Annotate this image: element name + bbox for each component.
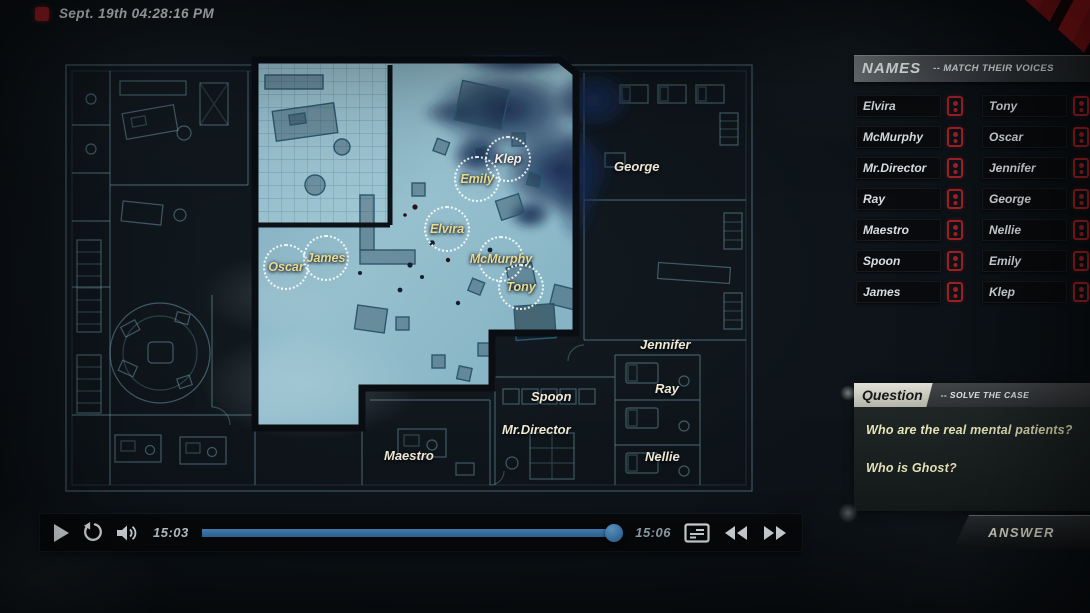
marker-label: Tony <box>506 280 535 294</box>
character-marker[interactable]: Oscar <box>263 244 309 290</box>
voice-slot-icon[interactable] <box>947 251 963 271</box>
progress-track[interactable] <box>202 529 623 537</box>
blueprint-map <box>60 55 760 500</box>
rewind-icon[interactable] <box>723 525 749 541</box>
name-slot[interactable]: Klep <box>982 281 1067 303</box>
person-glyph <box>1079 287 1084 292</box>
question-subtitle-band: -- SOLVE THE CASE <box>925 383 1090 407</box>
question-body: Who are the real mental patients? Who is… <box>854 407 1090 475</box>
voice-slot-icon[interactable] <box>1073 127 1089 147</box>
volume-icon[interactable] <box>116 524 140 542</box>
marker-label: Emily <box>460 172 493 186</box>
name-slot[interactable]: Nellie <box>982 219 1067 241</box>
voice-slot-icon[interactable] <box>1073 96 1089 116</box>
character-label[interactable]: George <box>614 159 660 174</box>
name-slot[interactable]: Maestro <box>856 219 941 241</box>
marker-label: Klep <box>494 152 521 166</box>
character-label[interactable]: Maestro <box>384 448 434 463</box>
question-panel-header: Question -- SOLVE THE CASE <box>854 383 1090 407</box>
red-square-icon <box>35 7 49 21</box>
person-glyph <box>1079 132 1084 137</box>
character-label[interactable]: Jennifer <box>640 337 691 352</box>
name-slot[interactable]: Tony <box>982 95 1067 117</box>
voice-slot-icon[interactable] <box>947 220 963 240</box>
person-glyph <box>1079 225 1084 230</box>
voice-slot-icon[interactable] <box>947 189 963 209</box>
character-label[interactable]: Mr.Director <box>502 422 571 437</box>
person-glyph <box>953 194 958 199</box>
person-glyph <box>1079 256 1084 261</box>
name-slot[interactable]: Elvira <box>856 95 941 117</box>
name-slot[interactable]: Jennifer <box>982 157 1067 179</box>
progress-fill <box>202 529 614 537</box>
voice-slot-icon[interactable] <box>947 127 963 147</box>
names-panel: NAMES -- MATCH THEIR VOICES Elvira Tony … <box>854 55 1090 303</box>
fast-forward-icon[interactable] <box>762 525 788 541</box>
answer-button[interactable]: ANSWER <box>953 515 1090 549</box>
character-label[interactable]: Spoon <box>531 389 571 404</box>
character-marker[interactable]: Klep <box>485 136 531 182</box>
names-title: NAMES <box>862 60 921 77</box>
total-time: 15:06 <box>635 525 671 540</box>
person-glyph <box>1079 101 1084 106</box>
timestamp: Sept. 19th 04:28:16 PM <box>59 6 214 21</box>
voice-slot-icon[interactable] <box>947 282 963 302</box>
question-panel: Question -- SOLVE THE CASE Who are the r… <box>854 383 1090 511</box>
audio-player-bar: 15:03 15:06 <box>40 514 802 551</box>
name-slot[interactable]: James <box>856 281 941 303</box>
person-glyph <box>953 163 958 168</box>
name-slot[interactable]: Oscar <box>982 126 1067 148</box>
progress-knob[interactable] <box>605 524 623 542</box>
character-marker[interactable]: James <box>303 235 349 281</box>
name-slot[interactable]: Ray <box>856 188 941 210</box>
name-slot[interactable]: Emily <box>982 250 1067 272</box>
person-glyph <box>953 287 958 292</box>
transcript-icon[interactable] <box>684 523 710 543</box>
person-glyph <box>953 101 958 106</box>
question-subtitle: -- SOLVE THE CASE <box>941 390 1030 400</box>
question-text: Who are the real mental patients? <box>866 423 1079 437</box>
person-glyph <box>953 132 958 137</box>
lit-room <box>200 55 633 440</box>
voice-slot-icon[interactable] <box>1073 220 1089 240</box>
voice-slot-icon[interactable] <box>1073 282 1089 302</box>
character-marker[interactable]: Elvira <box>424 206 470 252</box>
name-slot[interactable]: Mr.Director <box>856 157 941 179</box>
play-icon[interactable] <box>54 524 69 542</box>
person-glyph <box>1079 163 1084 168</box>
voice-slot-icon[interactable] <box>1073 251 1089 271</box>
restart-icon[interactable] <box>82 522 103 543</box>
blueprint-svg <box>60 55 760 500</box>
question-text: Who is Ghost? <box>866 461 1079 475</box>
names-grid: Elvira Tony McMurphy Oscar Mr.Director J… <box>854 95 1090 303</box>
elapsed-time: 15:03 <box>153 525 189 540</box>
question-title-band: Question <box>854 383 933 407</box>
character-marker[interactable]: Tony <box>498 264 544 310</box>
names-subtitle: -- MATCH THEIR VOICES <box>933 63 1054 74</box>
names-panel-header: NAMES -- MATCH THEIR VOICES <box>854 55 1090 82</box>
game-screen: Sept. 19th 04:28:16 PM <box>0 0 1090 613</box>
marker-label: Elvira <box>430 222 464 236</box>
marker-label: Oscar <box>268 260 303 274</box>
character-label[interactable]: Ray <box>655 381 679 396</box>
person-glyph <box>953 256 958 261</box>
person-glyph <box>1079 194 1084 199</box>
person-glyph <box>953 225 958 230</box>
voice-slot-icon[interactable] <box>1073 189 1089 209</box>
voice-slot-icon[interactable] <box>1073 158 1089 178</box>
question-title: Question <box>862 387 923 403</box>
name-slot[interactable]: McMurphy <box>856 126 941 148</box>
voice-slot-icon[interactable] <box>947 158 963 178</box>
name-slot[interactable]: Spoon <box>856 250 941 272</box>
voice-slot-icon[interactable] <box>947 96 963 116</box>
marker-label: James <box>307 251 346 265</box>
character-label[interactable]: Nellie <box>645 449 680 464</box>
name-slot[interactable]: George <box>982 188 1067 210</box>
